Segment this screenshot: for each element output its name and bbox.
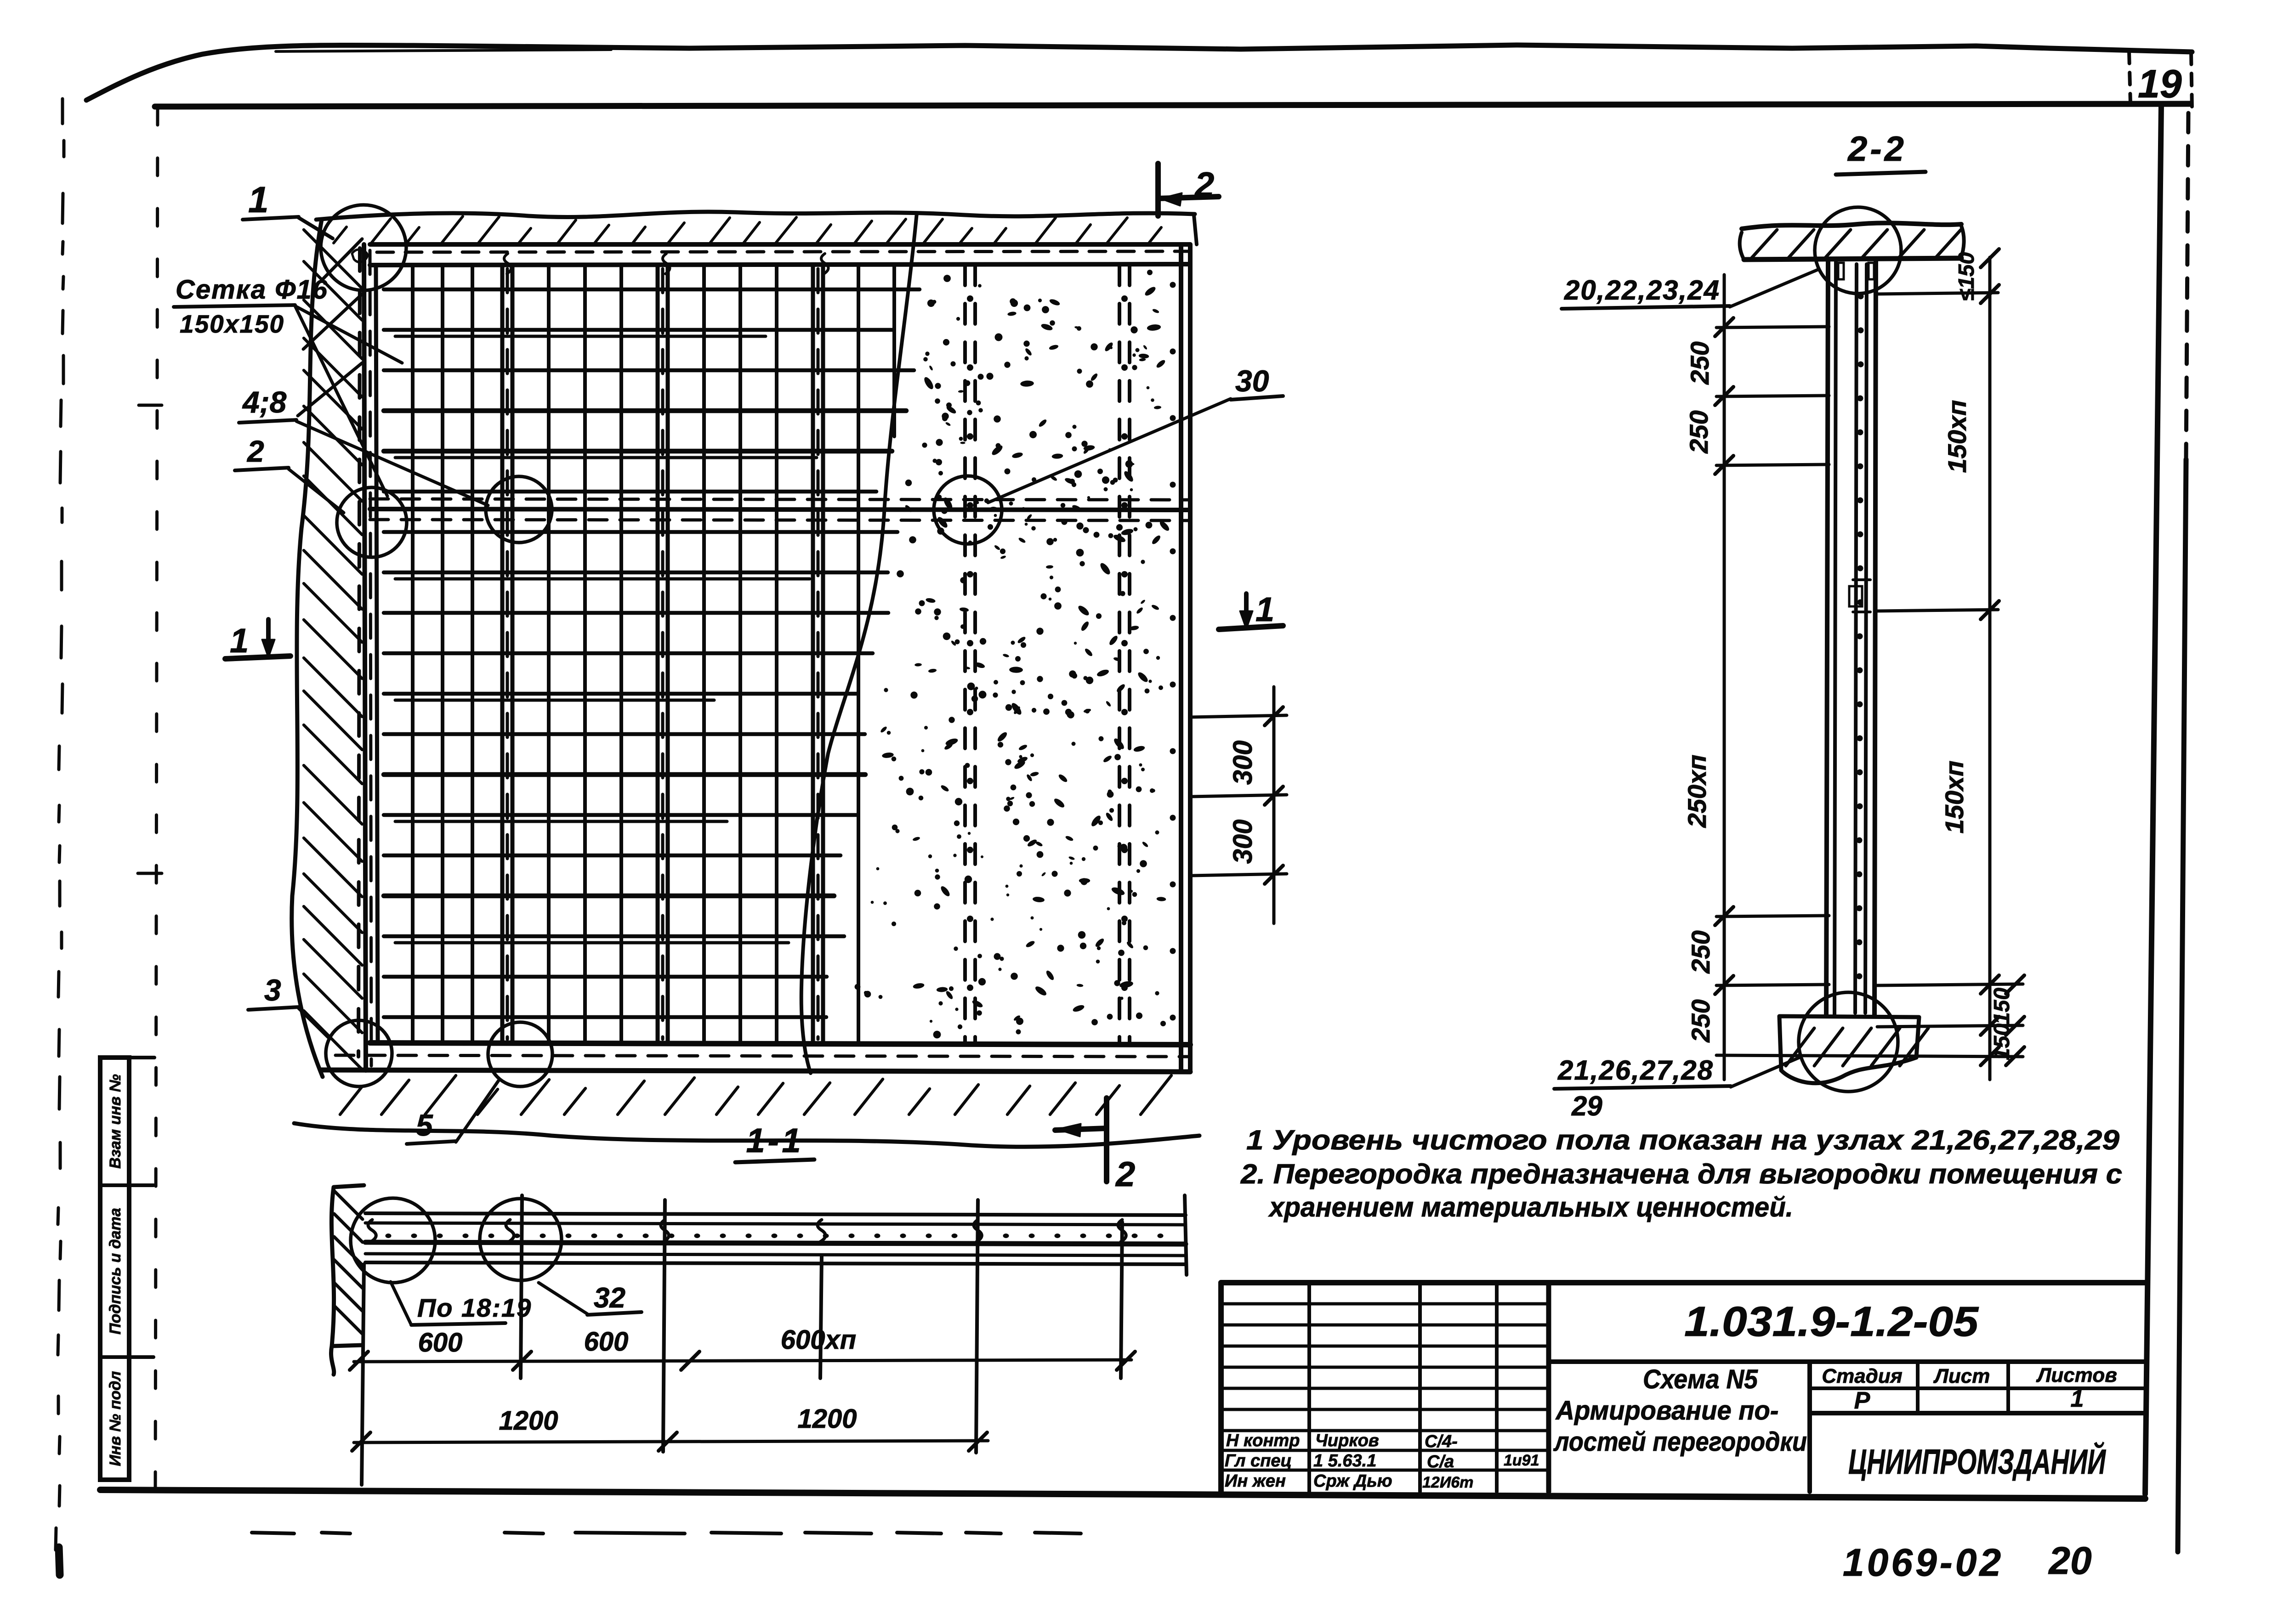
svg-text:Срж Дью: Срж Дью: [1313, 1471, 1392, 1491]
svg-text:250: 250: [1686, 930, 1715, 973]
svg-text:≤150: ≤150: [1954, 252, 1979, 301]
svg-text:Взам инв №: Взам инв №: [107, 1074, 124, 1169]
svg-text:4;8: 4;8: [242, 385, 287, 419]
svg-text:2. Перегородка предназначена: 2. Перегородка предназначена для выгород…: [1240, 1159, 2122, 1189]
svg-text:150хп: 150хп: [1943, 400, 1971, 473]
svg-text:5: 5: [416, 1108, 433, 1142]
svg-text:600: 600: [584, 1327, 629, 1357]
svg-text:1и91: 1и91: [1504, 1452, 1539, 1469]
svg-text:1200: 1200: [797, 1404, 857, 1434]
svg-text:хранением материальных цен: хранением материальных ценностей.: [1268, 1192, 1793, 1222]
svg-text:1: 1: [2071, 1386, 2084, 1412]
svg-text:С/а: С/а: [1427, 1452, 1454, 1471]
svg-text:19: 19: [2138, 62, 2182, 106]
svg-text:600: 600: [418, 1328, 463, 1358]
svg-text:250: 250: [1686, 999, 1715, 1042]
svg-text:1069-02: 1069-02: [1843, 1541, 2004, 1584]
svg-text:Армирование по-: Армирование по-: [1555, 1396, 1779, 1426]
svg-text:Р: Р: [1854, 1387, 1870, 1414]
svg-text:300: 300: [1228, 741, 1258, 785]
svg-text:29: 29: [1571, 1091, 1602, 1121]
svg-text:1: 1: [1255, 590, 1274, 628]
svg-text:2-2: 2-2: [1847, 130, 1907, 169]
svg-text:21,26,27,28: 21,26,27,28: [1557, 1055, 1714, 1086]
svg-text:Чирков: Чирков: [1315, 1431, 1379, 1450]
svg-text:600хп: 600хп: [781, 1325, 856, 1355]
svg-text:12И6т: 12И6т: [1422, 1474, 1473, 1491]
svg-text:150х150: 150х150: [180, 310, 284, 338]
svg-text:Гл спец: Гл спец: [1225, 1451, 1292, 1471]
svg-text:Н контр: Н контр: [1226, 1431, 1300, 1450]
svg-text:1 Уровень чистого пола по: 1 Уровень чистого пола показан на узлах …: [1246, 1125, 2120, 1155]
svg-text:С/4-: С/4-: [1425, 1432, 1458, 1451]
svg-text:300: 300: [1228, 820, 1258, 864]
svg-text:1 5.63.1: 1 5.63.1: [1313, 1451, 1376, 1471]
svg-text:Сетка Ф16: Сетка Ф16: [176, 275, 328, 305]
svg-text:1200: 1200: [499, 1406, 558, 1436]
svg-text:150хп: 150хп: [1940, 761, 1969, 834]
svg-text:Схема N5: Схема N5: [1643, 1364, 1758, 1394]
svg-text:20,22,23,24: 20,22,23,24: [1564, 275, 1720, 306]
svg-text:Ин жен: Ин жен: [1225, 1471, 1286, 1491]
svg-text:ЦНИИПРОМЗДАНИЙ: ЦНИИПРОМЗДАНИЙ: [1848, 1442, 2106, 1482]
svg-text:250хп: 250хп: [1682, 755, 1711, 828]
svg-text:1.031.9-1.2-05: 1.031.9-1.2-05: [1684, 1298, 1979, 1345]
svg-text:2: 2: [1194, 165, 1214, 204]
svg-text:Подпись и дата: Подпись и дата: [107, 1208, 124, 1335]
svg-text:По 18:19: По 18:19: [417, 1293, 532, 1322]
svg-text:1: 1: [230, 622, 249, 660]
svg-text:Инв № подл: Инв № подл: [107, 1371, 124, 1466]
svg-text:1-1: 1-1: [746, 1121, 804, 1160]
svg-text:1: 1: [248, 179, 269, 220]
svg-text:250: 250: [1685, 341, 1714, 385]
svg-text:2: 2: [1115, 1155, 1135, 1194]
svg-text:Листов: Листов: [2036, 1364, 2117, 1386]
svg-text:150: 150: [1990, 1024, 2014, 1060]
svg-text:250: 250: [1684, 410, 1713, 453]
svg-text:2: 2: [246, 434, 264, 468]
svg-text:30: 30: [1235, 364, 1269, 398]
svg-text:Лист: Лист: [1933, 1365, 1990, 1387]
svg-text:Стадия: Стадия: [1822, 1365, 1902, 1387]
svg-text:3: 3: [264, 973, 281, 1007]
svg-text:лостей перегородки: лостей перегородки: [1553, 1427, 1807, 1457]
svg-text:150: 150: [1990, 988, 2014, 1024]
svg-text:32: 32: [594, 1282, 625, 1314]
svg-text:20: 20: [2048, 1539, 2091, 1582]
